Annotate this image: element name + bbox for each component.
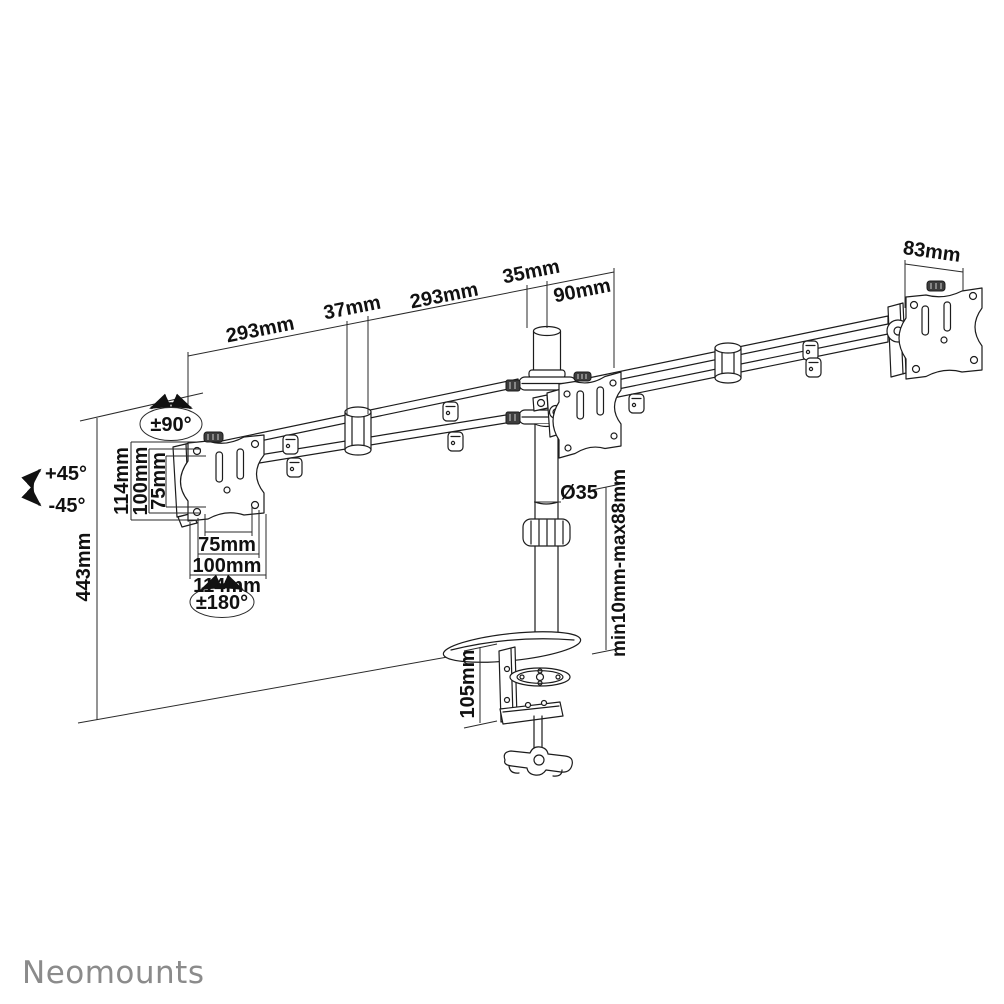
thumbscrew-knob — [204, 432, 223, 442]
cable-clip — [806, 358, 821, 377]
cable-clip — [448, 432, 463, 451]
dim-line-top-chain — [188, 272, 614, 356]
brand-logo: Neomounts — [22, 955, 205, 991]
vesa-slot — [922, 306, 929, 335]
arm-connector — [345, 407, 371, 455]
under-desk-disc — [510, 668, 570, 686]
cable-clip — [803, 341, 818, 360]
height-adjust-knob — [523, 519, 570, 546]
vesa-slot — [597, 387, 604, 415]
cable-clip — [629, 394, 644, 413]
vesa-slot — [216, 452, 223, 482]
monitor-mount-drawing: 293mm 37mm 293mm 35mm 90mm 83mm ±90° +45… — [0, 0, 1004, 1004]
right-vesa — [887, 281, 982, 379]
total-height-label: 443mm — [73, 533, 95, 602]
dim-label-right-plate: 83mm — [902, 237, 962, 267]
vesa-slot — [577, 391, 584, 419]
technical-diagram: 293mm 37mm 293mm 35mm 90mm 83mm ±90° +45… — [0, 0, 1004, 1004]
cable-clip — [283, 435, 298, 454]
dim-label-pole-offset: 90mm — [552, 275, 613, 308]
swivel-label: ±90° — [150, 414, 191, 436]
tilt-down-label: -45° — [49, 495, 86, 517]
thumbscrew-knob — [574, 372, 591, 381]
cable-clip — [287, 458, 302, 477]
clamp-height-label: 105mm — [457, 650, 479, 719]
vesa-slot — [237, 449, 244, 479]
dim-label-pole-top: 35mm — [501, 256, 562, 289]
vesa-v75-label: 75mm — [148, 452, 170, 510]
clamp-bolt — [506, 412, 520, 424]
vesa-h100-label: 100mm — [193, 555, 262, 577]
clamp-range-label: min10mm-max88mm — [609, 469, 630, 657]
rotation-label: ±180° — [196, 592, 248, 614]
thumbscrew-knob — [927, 281, 945, 291]
right-arm — [574, 316, 888, 413]
vesa-h75-label: 75mm — [198, 534, 256, 556]
pole-diameter-label: Ø35 — [560, 482, 598, 504]
vesa-plate — [899, 288, 982, 379]
cable-clip — [443, 402, 458, 421]
clamp-bolt — [506, 380, 520, 391]
dim-label-arm-right: 293mm — [408, 278, 480, 313]
vesa-slot — [944, 302, 951, 331]
tilt-up-label: +45° — [45, 463, 87, 485]
clamp-t-knob — [504, 747, 572, 776]
arm-connector — [715, 343, 741, 383]
tilt-arrows-icon — [32, 470, 40, 505]
